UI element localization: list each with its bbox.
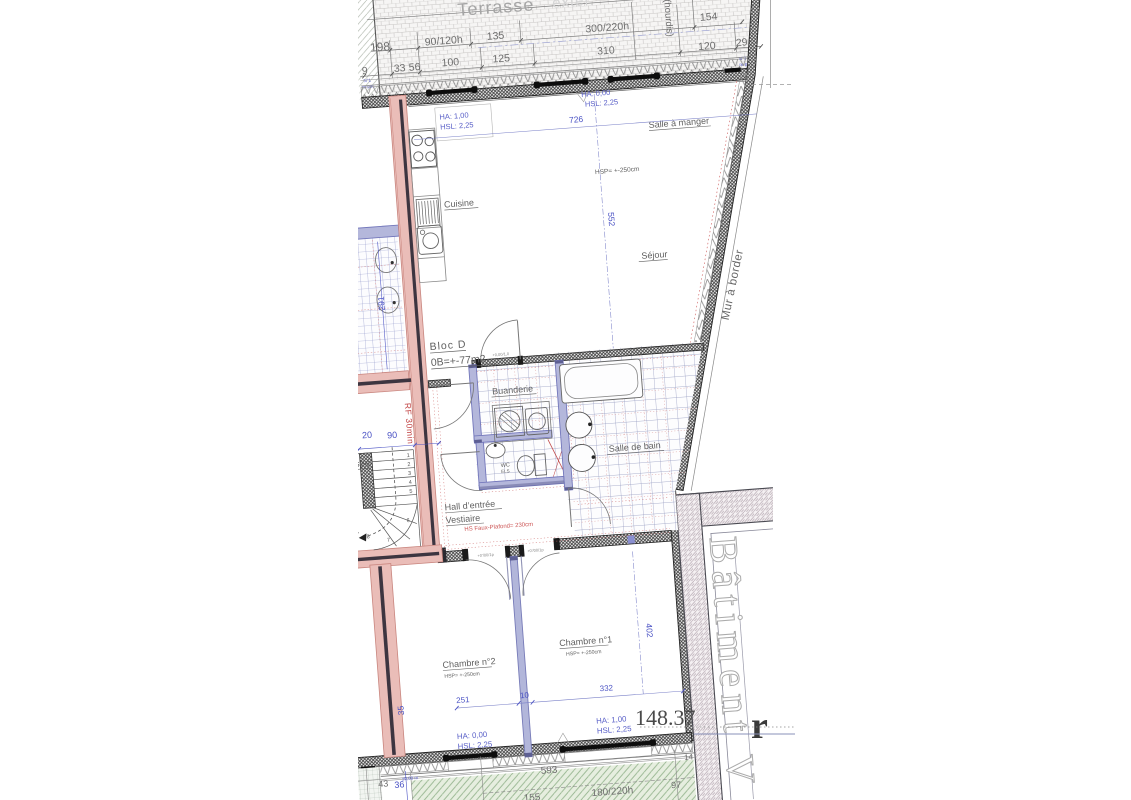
svg-text:14: 14 [684,752,694,762]
svg-text:251: 251 [456,695,471,705]
svg-text:155: 155 [523,792,541,800]
svg-text:7: 7 [387,538,391,544]
svg-text:6: 6 [406,518,410,524]
svg-text:1: 1 [407,453,411,459]
svg-text:33: 33 [393,62,406,75]
svg-text:593: 593 [540,765,558,777]
svg-text:r: r [751,705,768,747]
svg-text:9: 9 [361,65,368,77]
svg-text:135: 135 [486,30,505,43]
svg-text:100: 100 [441,56,460,69]
svg-text:4: 4 [409,480,413,486]
svg-text:90: 90 [387,430,398,441]
svg-text:125: 125 [492,52,511,65]
svg-text:5: 5 [409,489,413,495]
svg-text:148.37: 148.37 [635,705,696,730]
svg-text:35: 35 [395,705,406,715]
svg-text:198: 198 [369,39,390,54]
svg-text:120: 120 [698,40,717,53]
svg-text:154: 154 [700,11,719,24]
svg-text:2: 2 [407,462,411,468]
svg-text:10: 10 [520,691,530,701]
svg-text:291: 291 [376,296,387,311]
svg-text:402: 402 [644,623,655,638]
svg-text:97: 97 [671,779,682,790]
svg-text:552: 552 [606,212,617,227]
svg-text:3: 3 [408,471,412,477]
svg-text:Séjour: Séjour [641,249,668,261]
svg-text:310: 310 [597,44,616,57]
svg-text:20: 20 [362,430,373,441]
svg-text:726: 726 [569,114,584,125]
svg-text:43: 43 [378,778,389,789]
svg-text:ELS: ELS [501,468,510,474]
svg-text:56: 56 [408,61,421,74]
svg-text:29: 29 [735,36,748,49]
svg-text:332: 332 [599,683,614,693]
